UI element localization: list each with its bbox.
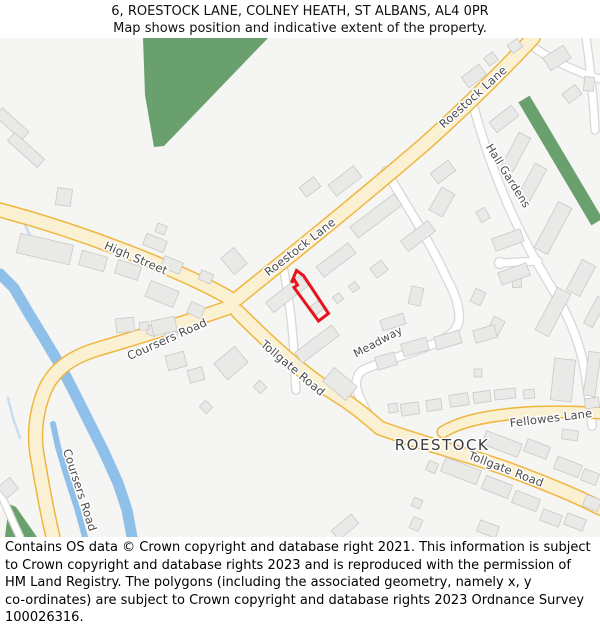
building (426, 399, 442, 412)
building (473, 390, 491, 403)
copyright-notice: Contains OS data © Crown copyright and d… (0, 537, 600, 625)
building (388, 403, 398, 413)
building (115, 317, 134, 333)
culdesac-hall-gardens-spur (495, 258, 505, 268)
building (474, 369, 482, 377)
building (561, 429, 578, 441)
building (400, 402, 419, 416)
building (523, 389, 535, 399)
building (550, 358, 575, 402)
building (449, 393, 469, 408)
map-header: 6, ROESTOCK LANE, COLNEY HEATH, ST ALBAN… (0, 0, 600, 38)
building (139, 322, 149, 331)
map-description-subtitle: Map shows position and indicative extent… (113, 20, 487, 37)
property-address-title: 6, ROESTOCK LANE, COLNEY HEATH, ST ALBAN… (111, 3, 488, 20)
road-hall-gardens-spur (502, 261, 538, 263)
map-canvas: High StreetRoestock LaneRoestock LaneHal… (0, 38, 600, 537)
map-label-roestock: ROESTOCK (395, 436, 490, 454)
building (583, 77, 594, 92)
building (494, 388, 516, 400)
building (55, 188, 72, 207)
